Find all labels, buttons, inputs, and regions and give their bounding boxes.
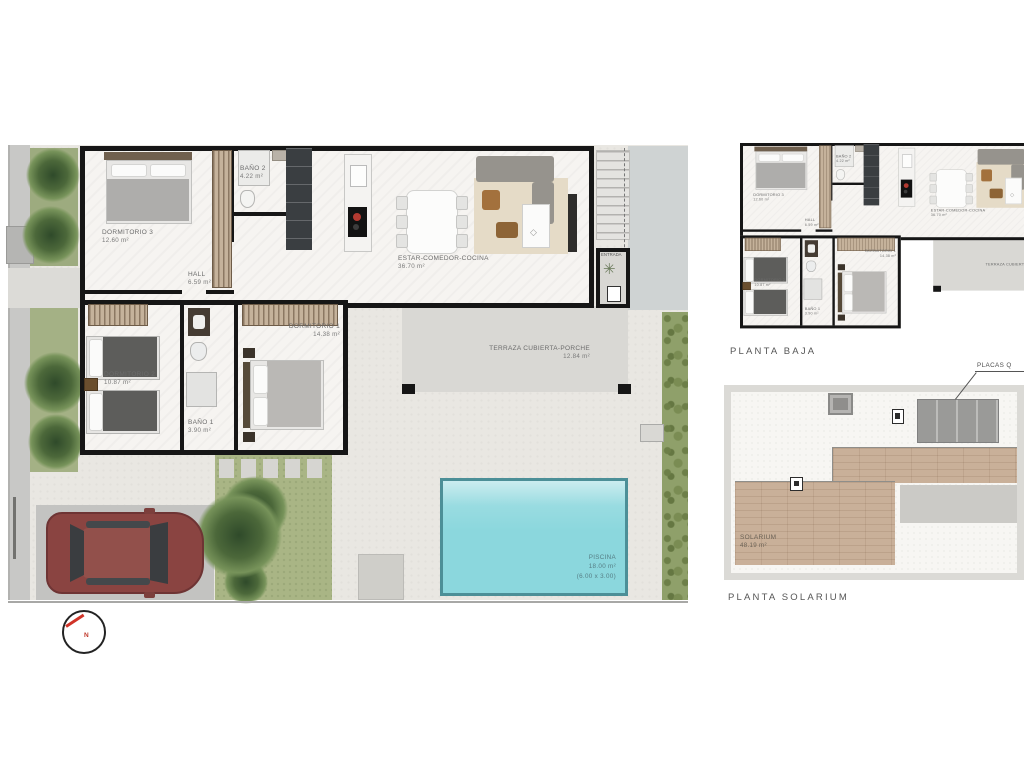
- wardrobe: [819, 145, 831, 228]
- pool: PISCINA 18.00 m² (6.00 x 3.00): [440, 478, 628, 596]
- dining-table: [936, 169, 967, 207]
- pillow: [150, 164, 186, 177]
- room-label-estar: ESTAR-COMEDOR-COCINA 36.70 m²: [931, 208, 985, 219]
- armchair: [981, 169, 992, 181]
- chair: [456, 215, 468, 229]
- burner: [353, 224, 359, 230]
- compass-needle: [65, 614, 84, 628]
- kitchen-tall-units: [864, 144, 880, 205]
- room-label-hall: HALL 6.59 m²: [805, 217, 819, 228]
- house-group: TERRAZA CUBIERTA-PORCHE 12.84 m² ENTRADA…: [740, 143, 1024, 329]
- room-label-estar: ESTAR-COMEDOR-COCINA 36.70 m²: [398, 254, 489, 272]
- room-label-terraza: TERRAZA CUBIERTA-PORCHE 12.84 m²: [956, 262, 1024, 273]
- room-label-dormitorio2: DORMITORIO 2 10.87 m²: [104, 370, 155, 388]
- coffee-table: ◇: [522, 204, 550, 248]
- terrace-pillar: [618, 384, 631, 394]
- room-label-solarium: SOLARIUM 48.19 m²: [740, 533, 776, 551]
- car-top-view: [46, 512, 204, 594]
- car-side-window: [86, 578, 150, 585]
- wardrobe: [88, 304, 148, 326]
- room-label-bano2: BAÑO 2 4.22 m²: [836, 154, 851, 165]
- shower: [804, 279, 823, 300]
- blanket: [103, 391, 157, 431]
- room-label-terraza: TERRAZA CUBIERTA-PORCHE 12.84 m²: [440, 344, 590, 362]
- toilet: [190, 342, 207, 361]
- room-label-dormitorio1: DORMITORIO 1 14.38 m²: [264, 322, 340, 340]
- chair: [930, 184, 937, 192]
- cabinet: [607, 286, 621, 302]
- room-label-bano2: BAÑO 2 4.22 m²: [240, 164, 266, 182]
- partition-wall: [800, 238, 802, 326]
- solarium-caption: PLANTA SOLARIUM: [728, 592, 849, 603]
- room-label-entrada: ENTRADA: [601, 252, 622, 258]
- compass-north-icon: N: [62, 610, 106, 654]
- partition-wall: [206, 290, 234, 294]
- bed-double: [250, 360, 324, 430]
- partition-wall: [84, 290, 182, 294]
- tree-icon: [28, 414, 84, 470]
- planta-baja-mini-content: TERRAZA CUBIERTA-PORCHE 12.84 m² ENTRADA…: [740, 143, 741, 144]
- car-mirror: [144, 592, 155, 598]
- bed-single: [86, 390, 160, 434]
- car-mirror: [144, 508, 155, 514]
- car-roof: [82, 528, 156, 578]
- blanket: [852, 272, 884, 312]
- blanket: [756, 163, 805, 188]
- solar-panels-callout: PLACAS Q: [977, 362, 1012, 369]
- pillow: [253, 397, 268, 426]
- blanket: [267, 361, 321, 427]
- bed-double: [106, 160, 192, 224]
- basin: [193, 315, 205, 329]
- lamp-post: [13, 497, 16, 559]
- bed-double: [842, 271, 886, 313]
- partition-wall: [832, 238, 834, 326]
- stepping-paver: [219, 459, 234, 478]
- room-label-dormitorio2: DORMITORIO 2 10.87 m²: [754, 277, 785, 288]
- deck-vent: [790, 477, 803, 491]
- bed-double: [756, 151, 808, 189]
- entrada-nook: ENTRADA ✳: [596, 248, 630, 308]
- entry-path: [8, 268, 80, 308]
- pillow: [844, 294, 853, 311]
- sofa: [978, 149, 1024, 165]
- sofa: [476, 156, 554, 182]
- basin: [808, 244, 815, 252]
- wardrobe: [745, 238, 781, 251]
- roof-vent: [892, 409, 904, 424]
- cooktop: [348, 207, 367, 237]
- pillow: [745, 291, 753, 314]
- headboard: [104, 152, 192, 160]
- stepping-paver: [285, 459, 300, 478]
- dining-table: [406, 190, 458, 254]
- tree-icon: [26, 148, 80, 202]
- partition-wall: [742, 229, 801, 231]
- chair: [966, 173, 973, 181]
- chair: [396, 234, 408, 248]
- room-label-hall: HALL 6.59 m²: [188, 270, 211, 288]
- nightstand: [742, 282, 750, 290]
- room-label-dormitorio3: DORMITORIO 3 12.60 m²: [102, 228, 153, 246]
- kitchen-sink: [902, 154, 912, 167]
- pillow: [89, 393, 103, 431]
- kitchen-sink: [350, 165, 367, 187]
- paver-square: [358, 554, 404, 600]
- partition-wall: [234, 304, 238, 450]
- plant-star-icon: ✳: [603, 260, 616, 278]
- pillow: [111, 164, 147, 177]
- concrete-band: [900, 485, 1017, 523]
- planta-baja-caption: PLANTA BAJA: [730, 346, 816, 357]
- bed-single: [744, 289, 788, 315]
- coffee-table: ◇: [1005, 178, 1022, 204]
- chair: [966, 184, 973, 192]
- toilet: [836, 169, 845, 180]
- shower: [186, 372, 217, 407]
- solar-panels: [917, 399, 999, 443]
- pillow: [759, 154, 781, 162]
- pillow: [782, 154, 804, 162]
- solarium-deck: [832, 447, 1017, 483]
- tree-icon: [22, 206, 80, 264]
- stepping-paver: [263, 459, 278, 478]
- room-label-bano1: BAÑO 1 3.90 m²: [188, 418, 214, 436]
- nightstand: [243, 432, 255, 442]
- pillow: [844, 274, 853, 291]
- plot-boundary-bottom: [8, 601, 688, 603]
- pillow: [745, 259, 753, 282]
- room-label-dormitorio3: DORMITORIO 3 12.60 m²: [753, 192, 784, 203]
- blanket: [754, 290, 786, 314]
- kitchen-island: [344, 154, 372, 252]
- tree-icon: [196, 492, 282, 578]
- kitchen-island: [898, 148, 915, 207]
- chair: [456, 234, 468, 248]
- toilet: [240, 190, 255, 208]
- chair: [966, 196, 973, 204]
- partition-wall: [180, 304, 184, 450]
- partition-wall: [816, 229, 833, 231]
- skylight-glass: [833, 398, 848, 410]
- callout-leader-underline: [975, 371, 1024, 372]
- chair: [930, 196, 937, 204]
- terrace-pillar: [402, 384, 415, 394]
- kitchen-tall-units: [286, 148, 312, 250]
- skylight: [828, 393, 853, 415]
- stepping-paver: [307, 459, 322, 478]
- room-label-bano1: BAÑO 1 3.90 m²: [805, 306, 820, 317]
- room-label-dormitorio1: DORMITORIO 1 14.38 m²: [850, 249, 896, 260]
- chair: [930, 173, 937, 181]
- hedge: [662, 312, 688, 600]
- vent-core: [794, 481, 799, 486]
- pillow: [253, 365, 268, 394]
- car-windshield: [150, 522, 168, 584]
- wardrobe: [212, 150, 232, 288]
- table-decor: ◇: [1010, 192, 1014, 199]
- vent-core: [895, 413, 900, 419]
- blanket: [107, 179, 189, 221]
- car-side-window: [86, 521, 150, 528]
- nightstand: [243, 348, 255, 358]
- solarium-deck: [735, 481, 895, 565]
- tv-unit: [568, 194, 577, 252]
- bathroom-sink: [188, 308, 210, 336]
- plot-boundary-left: [8, 145, 10, 600]
- armchair: [482, 190, 500, 210]
- burner: [353, 213, 361, 221]
- burner: [904, 190, 908, 194]
- chair: [456, 196, 468, 210]
- solarium-plan: SOLARIUM 48.19 m²: [724, 385, 1024, 580]
- compass-north-label: N: [84, 632, 89, 639]
- pillow: [89, 339, 103, 377]
- chair: [396, 215, 408, 229]
- bathroom-sink: [805, 240, 818, 257]
- nightstand: [838, 264, 845, 270]
- armchair: [496, 222, 518, 238]
- armchair: [990, 189, 1003, 199]
- burner: [904, 183, 909, 188]
- planta-baja-mini-plan: TERRAZA CUBIERTA-PORCHE 12.84 m² ENTRADA…: [724, 128, 1024, 340]
- nightstand: [84, 378, 98, 391]
- nightstand: [838, 315, 845, 321]
- pool-label: PISCINA 18.00 m² (6.00 x 3.00): [577, 553, 616, 581]
- headboard: [243, 362, 250, 428]
- car-rear-window: [70, 524, 84, 582]
- table-decor: ◇: [530, 227, 537, 238]
- floor-plan-sheet: TERRAZA CUBIERTA-PORCHE 12.84 m² ENTRADA…: [0, 0, 1024, 768]
- entry-paving: [628, 146, 688, 310]
- cooktop: [901, 180, 912, 198]
- chair: [396, 196, 408, 210]
- toilet: [806, 261, 816, 272]
- tree-icon: [24, 352, 86, 414]
- ac-unit: [640, 424, 664, 442]
- house-group: TERRAZA CUBIERTA-PORCHE 12.84 m² ENTRADA…: [80, 146, 688, 456]
- terrace-pillar: [933, 286, 941, 292]
